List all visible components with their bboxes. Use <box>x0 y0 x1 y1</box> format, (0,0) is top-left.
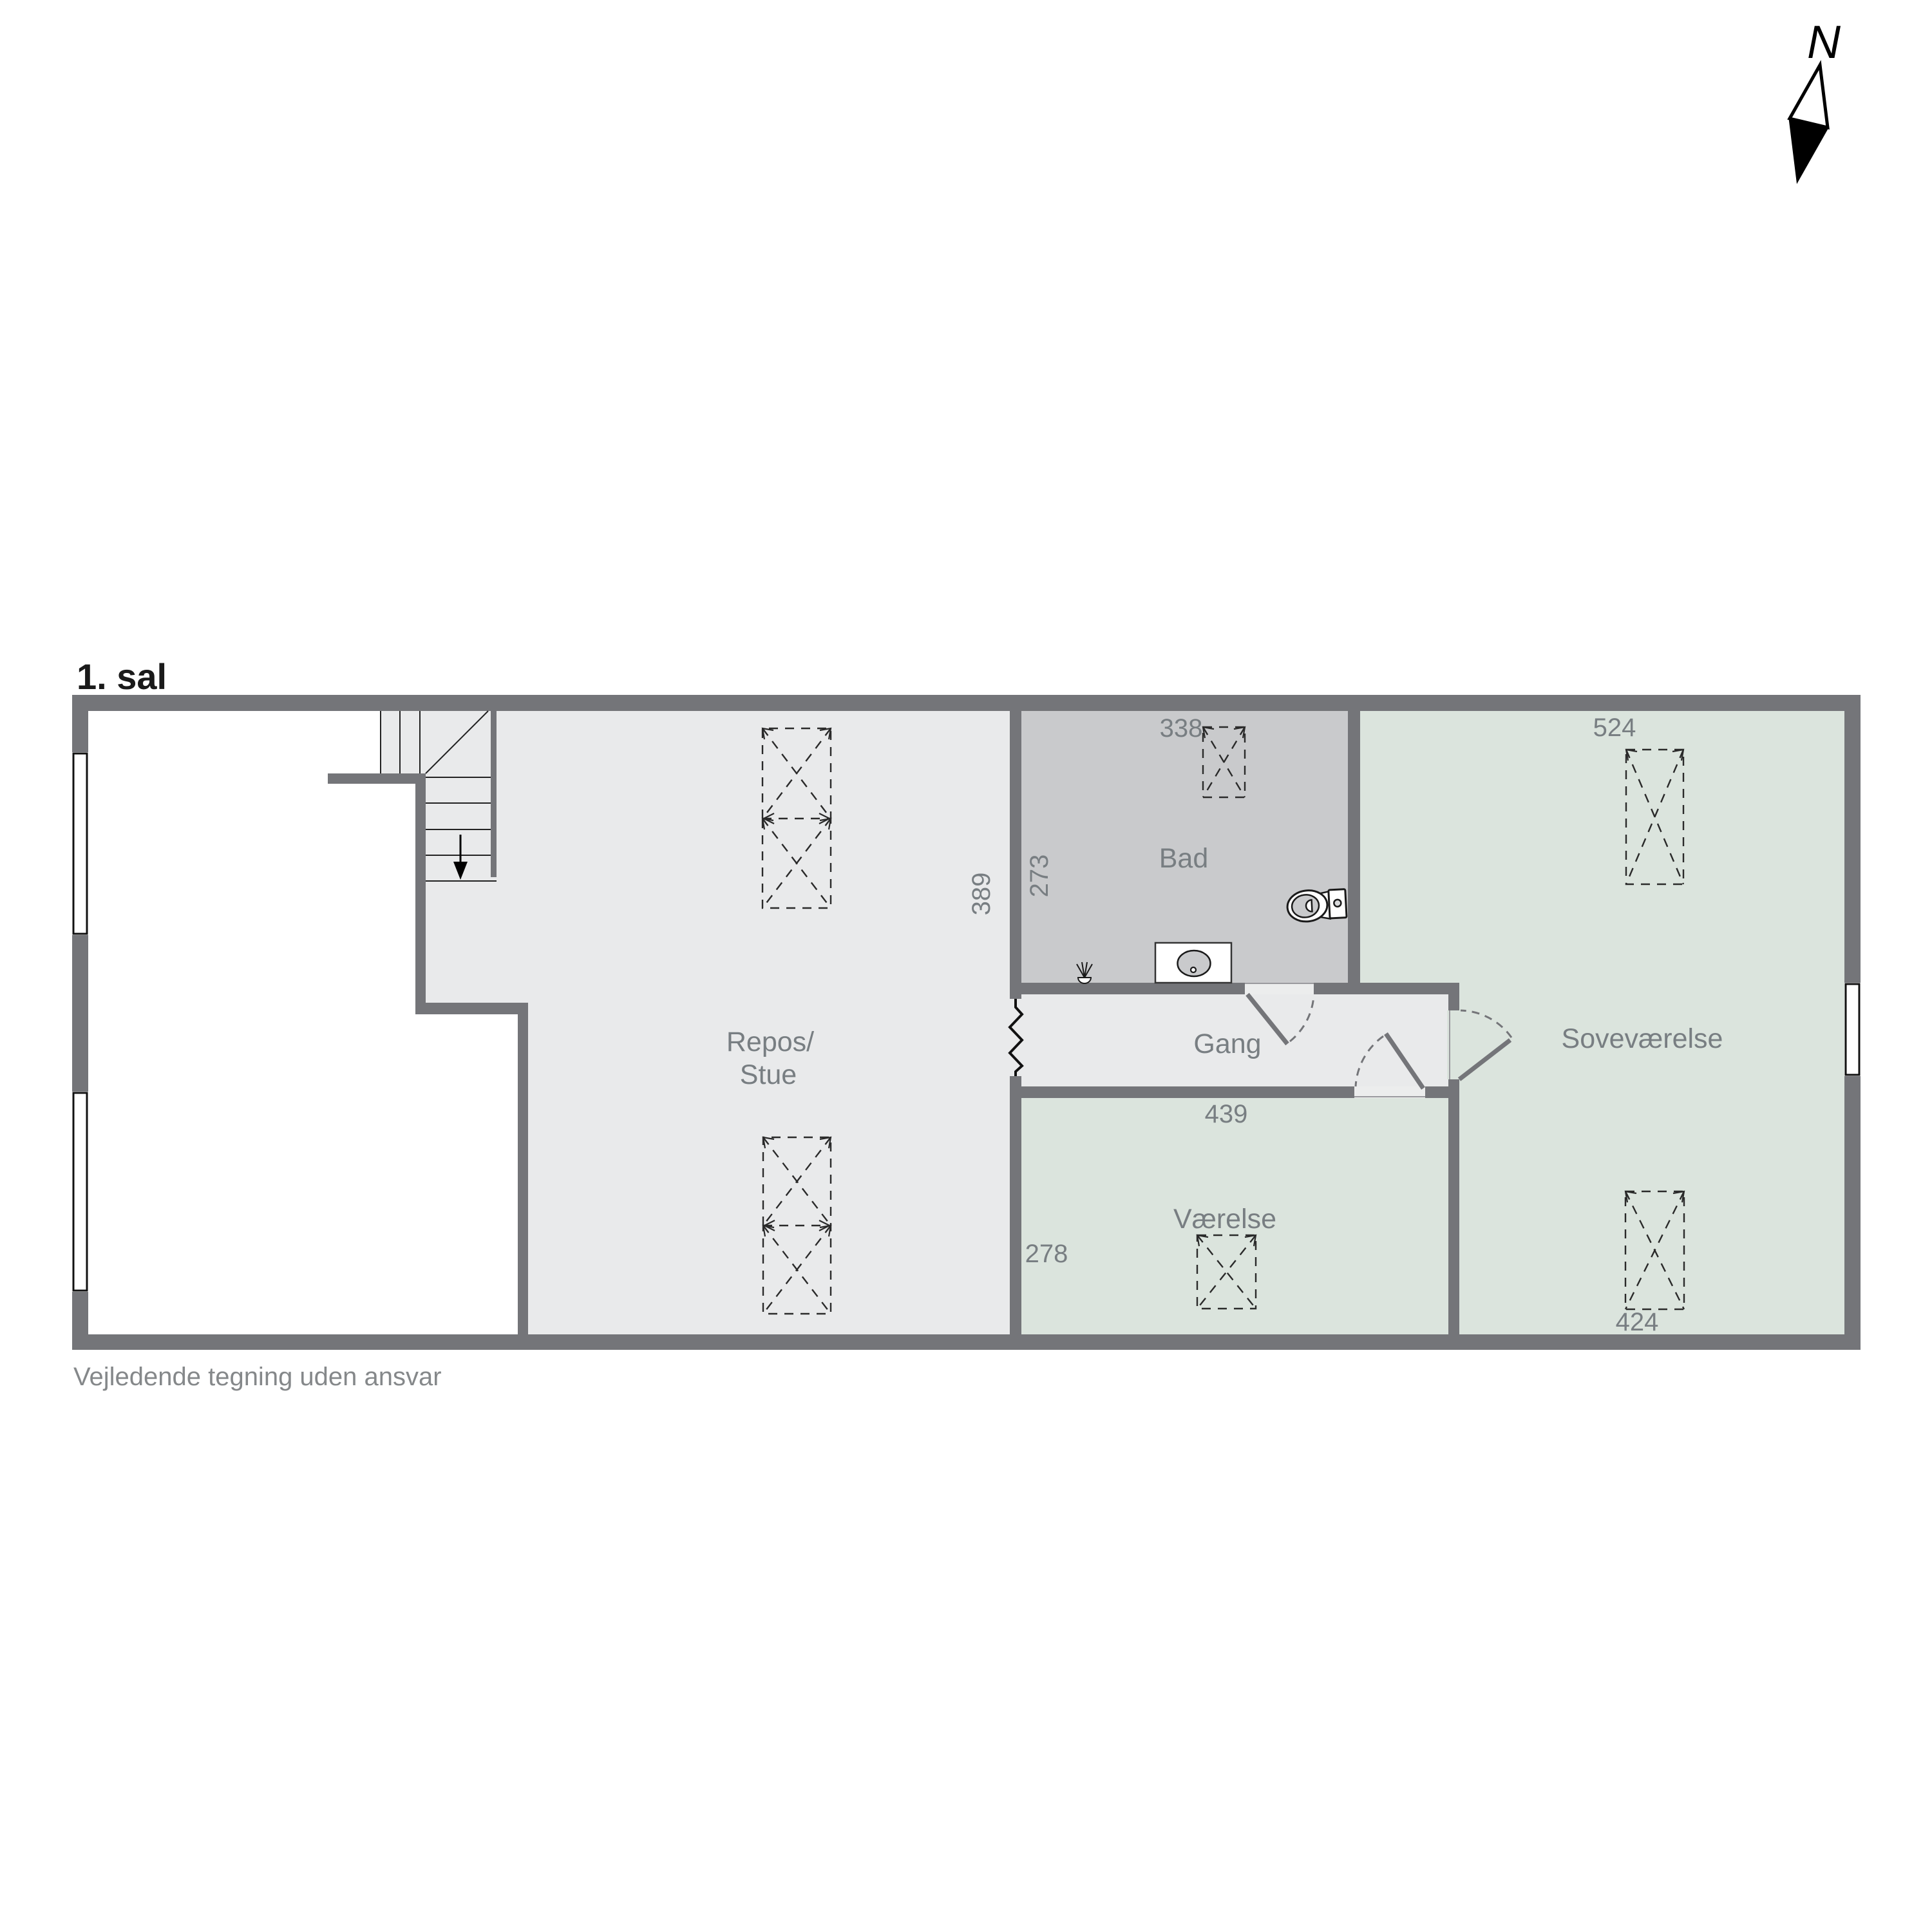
svg-text:338: 338 <box>1160 714 1203 743</box>
svg-text:Gang: Gang <box>1193 1028 1261 1059</box>
svg-text:1. sal: 1. sal <box>77 656 167 697</box>
svg-text:Bad: Bad <box>1159 843 1209 874</box>
svg-text:Værelse: Værelse <box>1173 1204 1276 1235</box>
svg-text:273: 273 <box>1025 855 1054 898</box>
svg-text:389: 389 <box>967 873 996 916</box>
svg-text:439: 439 <box>1205 1100 1248 1128</box>
svg-text:Vejledende tegning uden ansvar: Vejledende tegning uden ansvar <box>73 1363 442 1391</box>
svg-text:278: 278 <box>1025 1240 1068 1268</box>
svg-text:424: 424 <box>1616 1308 1659 1336</box>
svg-text:Stue: Stue <box>740 1059 797 1090</box>
svg-text:524: 524 <box>1593 714 1636 742</box>
svg-text:N: N <box>1807 17 1841 68</box>
svg-text:Soveværelse: Soveværelse <box>1562 1023 1723 1054</box>
svg-text:Repos/: Repos/ <box>726 1027 814 1057</box>
